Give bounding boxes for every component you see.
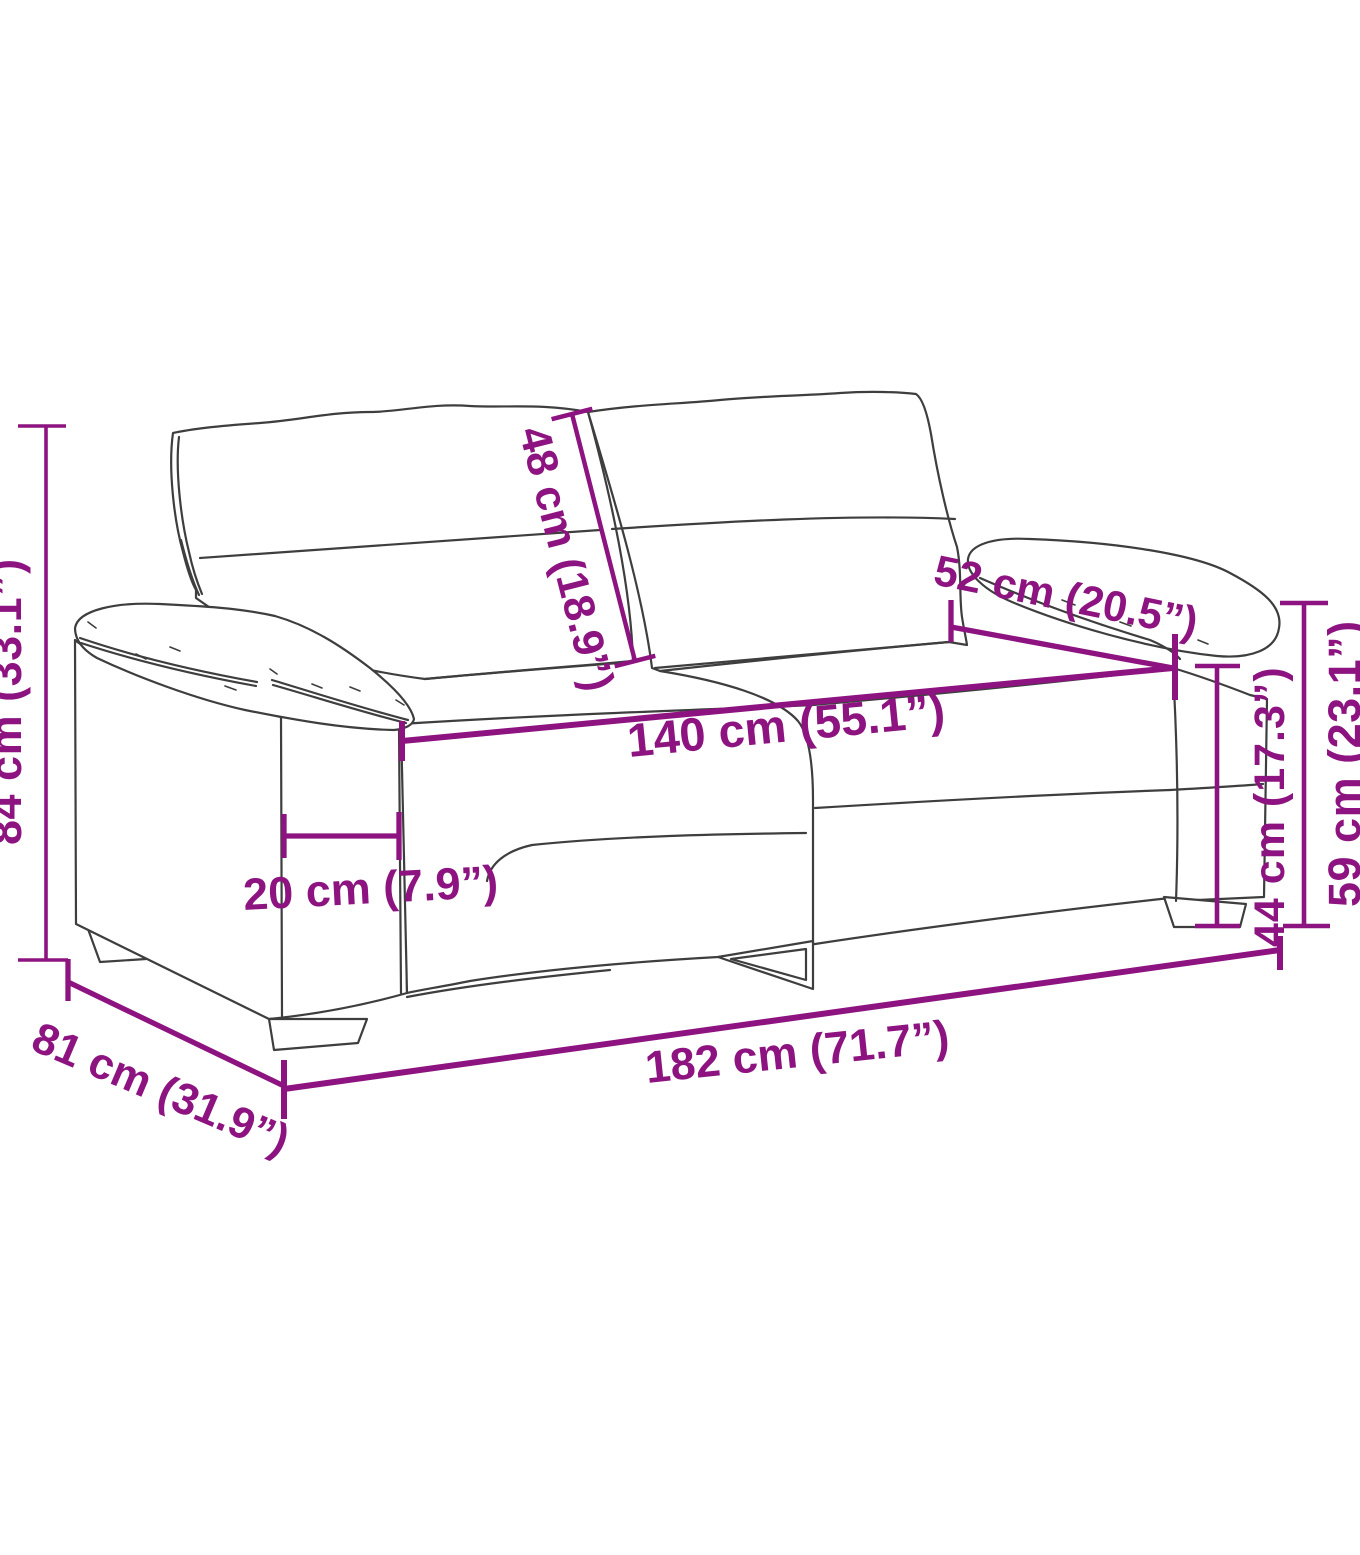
svg-text:59 cm (23.1”): 59 cm (23.1”) [1319,620,1360,907]
svg-text:84 cm (33.1”): 84 cm (33.1”) [0,558,31,845]
svg-text:44 cm (17.3”): 44 cm (17.3”) [1246,666,1294,947]
